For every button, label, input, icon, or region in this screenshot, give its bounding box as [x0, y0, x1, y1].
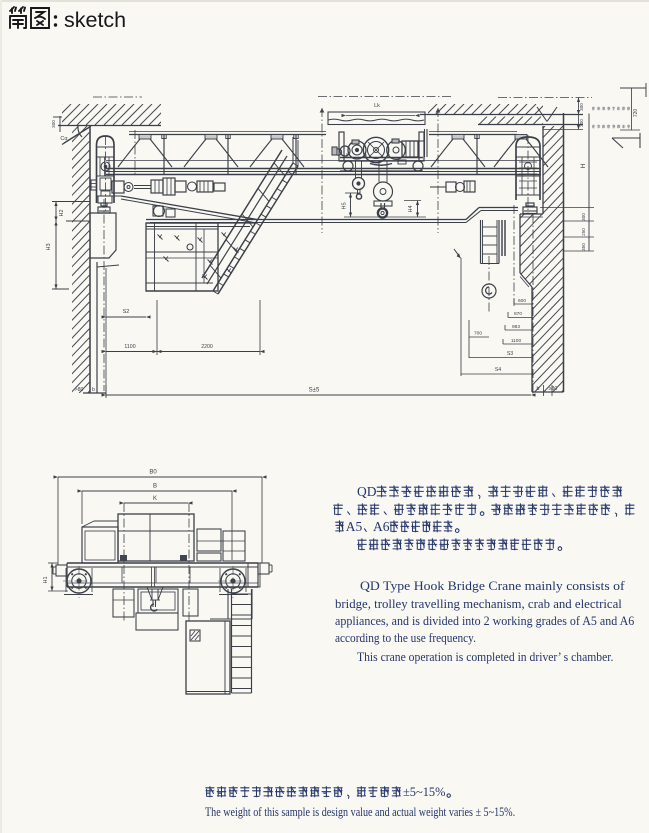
svg-text:±5~15%: ±5~15% — [403, 785, 445, 799]
svg-text:A6: A6 — [373, 519, 390, 534]
svg-text:A5: A5 — [346, 519, 363, 534]
svg-text:QD: QD — [357, 484, 377, 499]
